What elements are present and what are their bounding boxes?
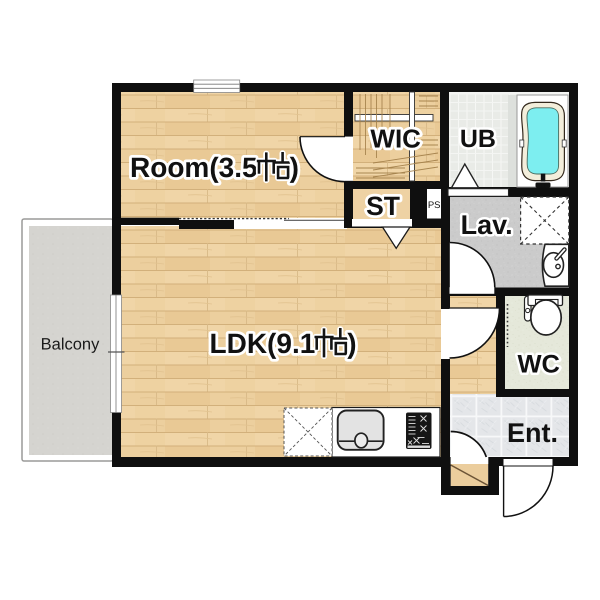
svg-text:WIC: WIC bbox=[370, 124, 421, 154]
svg-text:): ) bbox=[290, 152, 299, 183]
svg-text:): ) bbox=[347, 328, 356, 359]
svg-text:LDK(9.1: LDK(9.1 bbox=[210, 328, 316, 359]
svg-text:PS: PS bbox=[428, 200, 441, 211]
svg-text:UB: UB bbox=[460, 125, 496, 153]
svg-text:Lav.: Lav. bbox=[461, 210, 513, 240]
svg-text:Balcony: Balcony bbox=[41, 336, 100, 354]
svg-text:ST: ST bbox=[366, 191, 400, 221]
svg-text:Ent.: Ent. bbox=[507, 418, 558, 448]
svg-text:WC: WC bbox=[517, 351, 559, 379]
svg-text:Room(3.5: Room(3.5 bbox=[130, 152, 258, 183]
